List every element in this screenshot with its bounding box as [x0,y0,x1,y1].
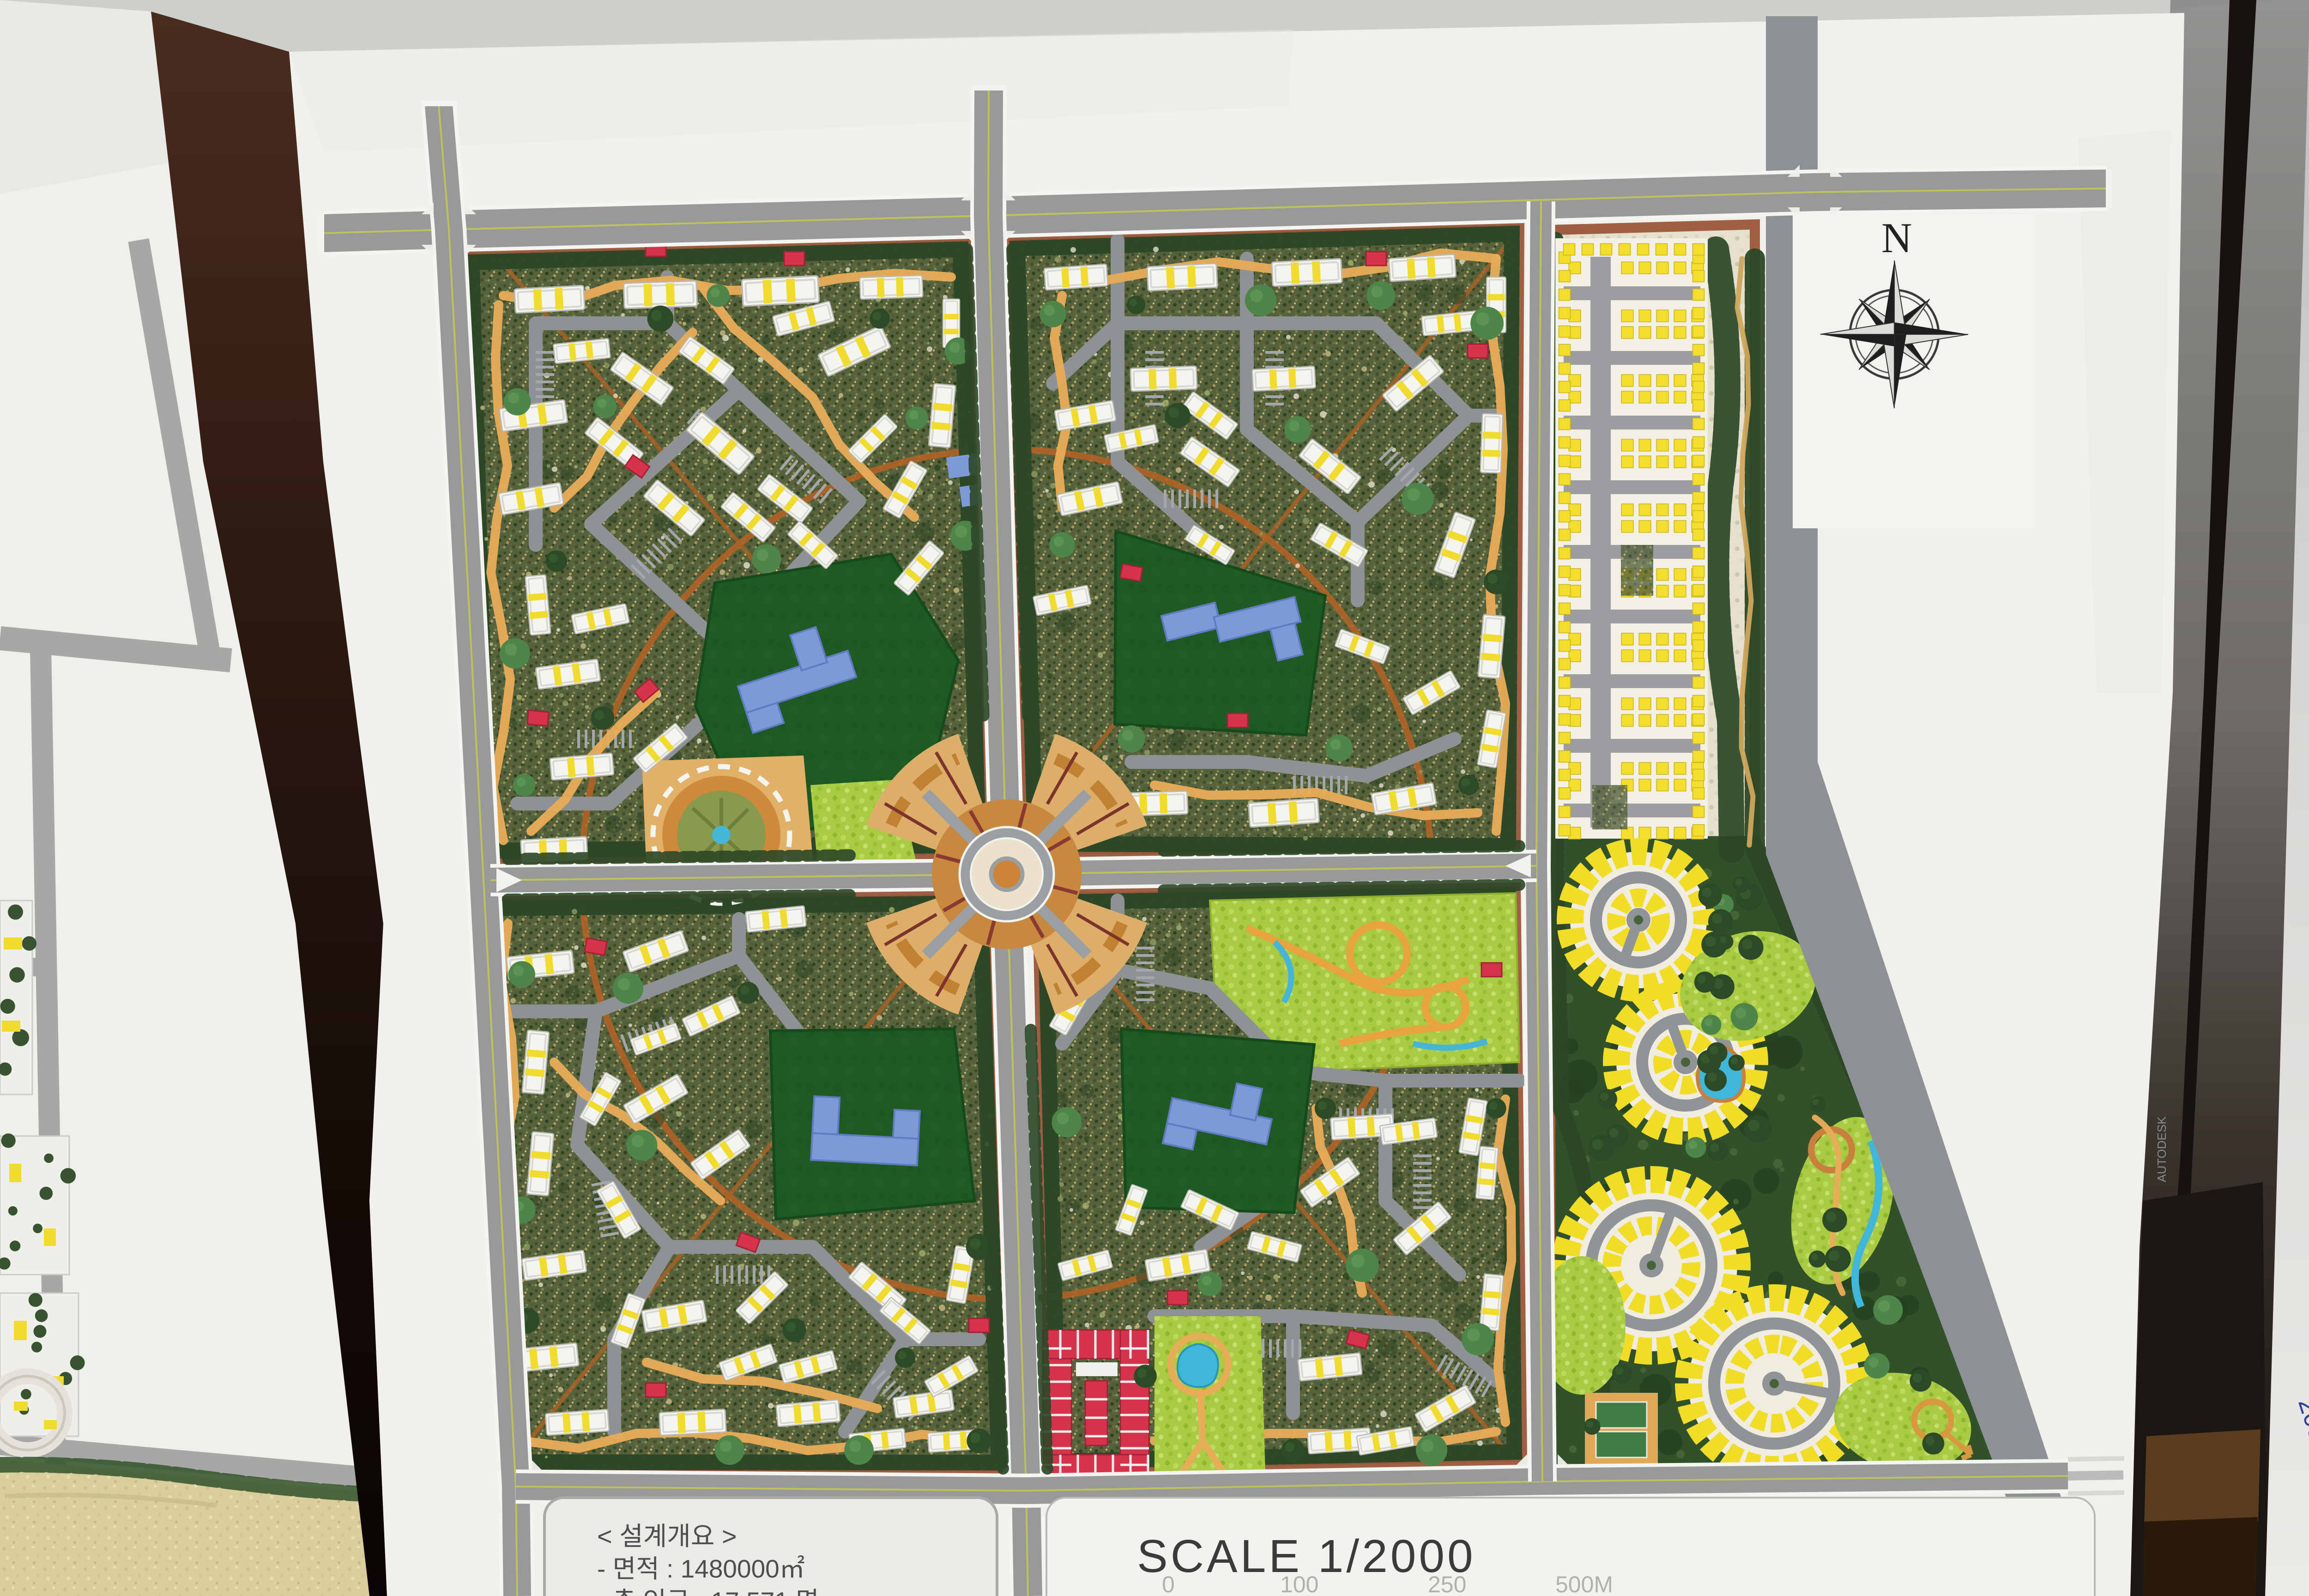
svg-text:500M: 500M [1555,1572,1613,1596]
svg-text:- 총 인구 : 17,571 명: - 총 인구 : 17,571 명 [597,1587,819,1596]
svg-text:100: 100 [1280,1572,1318,1596]
svg-text:0: 0 [1162,1572,1175,1596]
svg-text:AUTODESK: AUTODESK [2155,1116,2169,1182]
svg-text:250: 250 [1428,1572,1466,1596]
svg-text:< 설계개요 >: < 설계개요 > [597,1522,737,1551]
svg-text:N: N [1881,214,1912,261]
svg-text:- 면적 : 1480000㎡: - 면적 : 1480000㎡ [597,1554,805,1583]
